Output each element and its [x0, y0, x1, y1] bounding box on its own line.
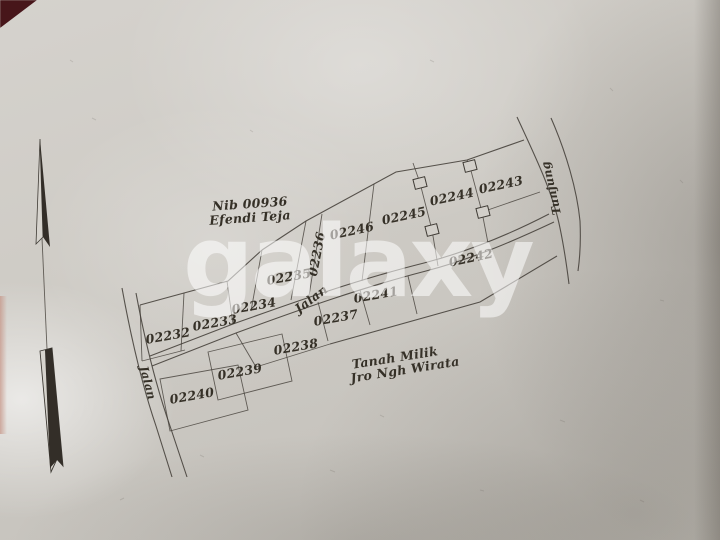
parcel-label-02246: 02246 — [328, 218, 375, 242]
parcel-label-02240: 02240 — [168, 384, 215, 407]
roads — [122, 117, 580, 477]
divider-02241-02242 — [408, 276, 417, 314]
parcel-label-02239: 02239 — [216, 360, 263, 383]
survey-marker — [425, 224, 439, 237]
survey-marker — [476, 206, 490, 219]
parcel-label-02244: 02244 — [428, 184, 475, 208]
parcel-02244-right-edge — [467, 160, 488, 243]
divider-02235-02236 — [291, 221, 306, 300]
parcel-02232-left-edge — [140, 305, 142, 361]
photographed-paper-map: 02232 02233 02234 02235 02236 02237 0223… — [0, 0, 720, 540]
parcel-label-02241: 02241 — [352, 283, 399, 306]
upper-row-top-edge — [140, 250, 262, 305]
parcel-label-02236: 02236 — [305, 230, 328, 277]
road-label-tunjung: Tunjung — [538, 160, 564, 216]
parcel-label-02245: 02245 — [380, 203, 427, 227]
north-arrow-icon — [36, 139, 63, 472]
parcel-label-02242: 02242 — [447, 245, 494, 269]
parcel-label-02232: 02232 — [144, 324, 191, 347]
divider-02232-02233 — [181, 293, 184, 351]
parcel-02243-bottom-edge — [482, 192, 540, 212]
parcel-label-02243: 02243 — [477, 172, 524, 196]
road-label-jalan-left: Jalan — [136, 363, 159, 401]
paper-specks — [70, 60, 683, 502]
survey-marker — [463, 160, 477, 173]
survey-marker — [413, 177, 427, 190]
cadastral-sketch: 02232 02233 02234 02235 02236 02237 0223… — [0, 0, 720, 540]
parcel-label-02234: 02234 — [230, 294, 277, 317]
